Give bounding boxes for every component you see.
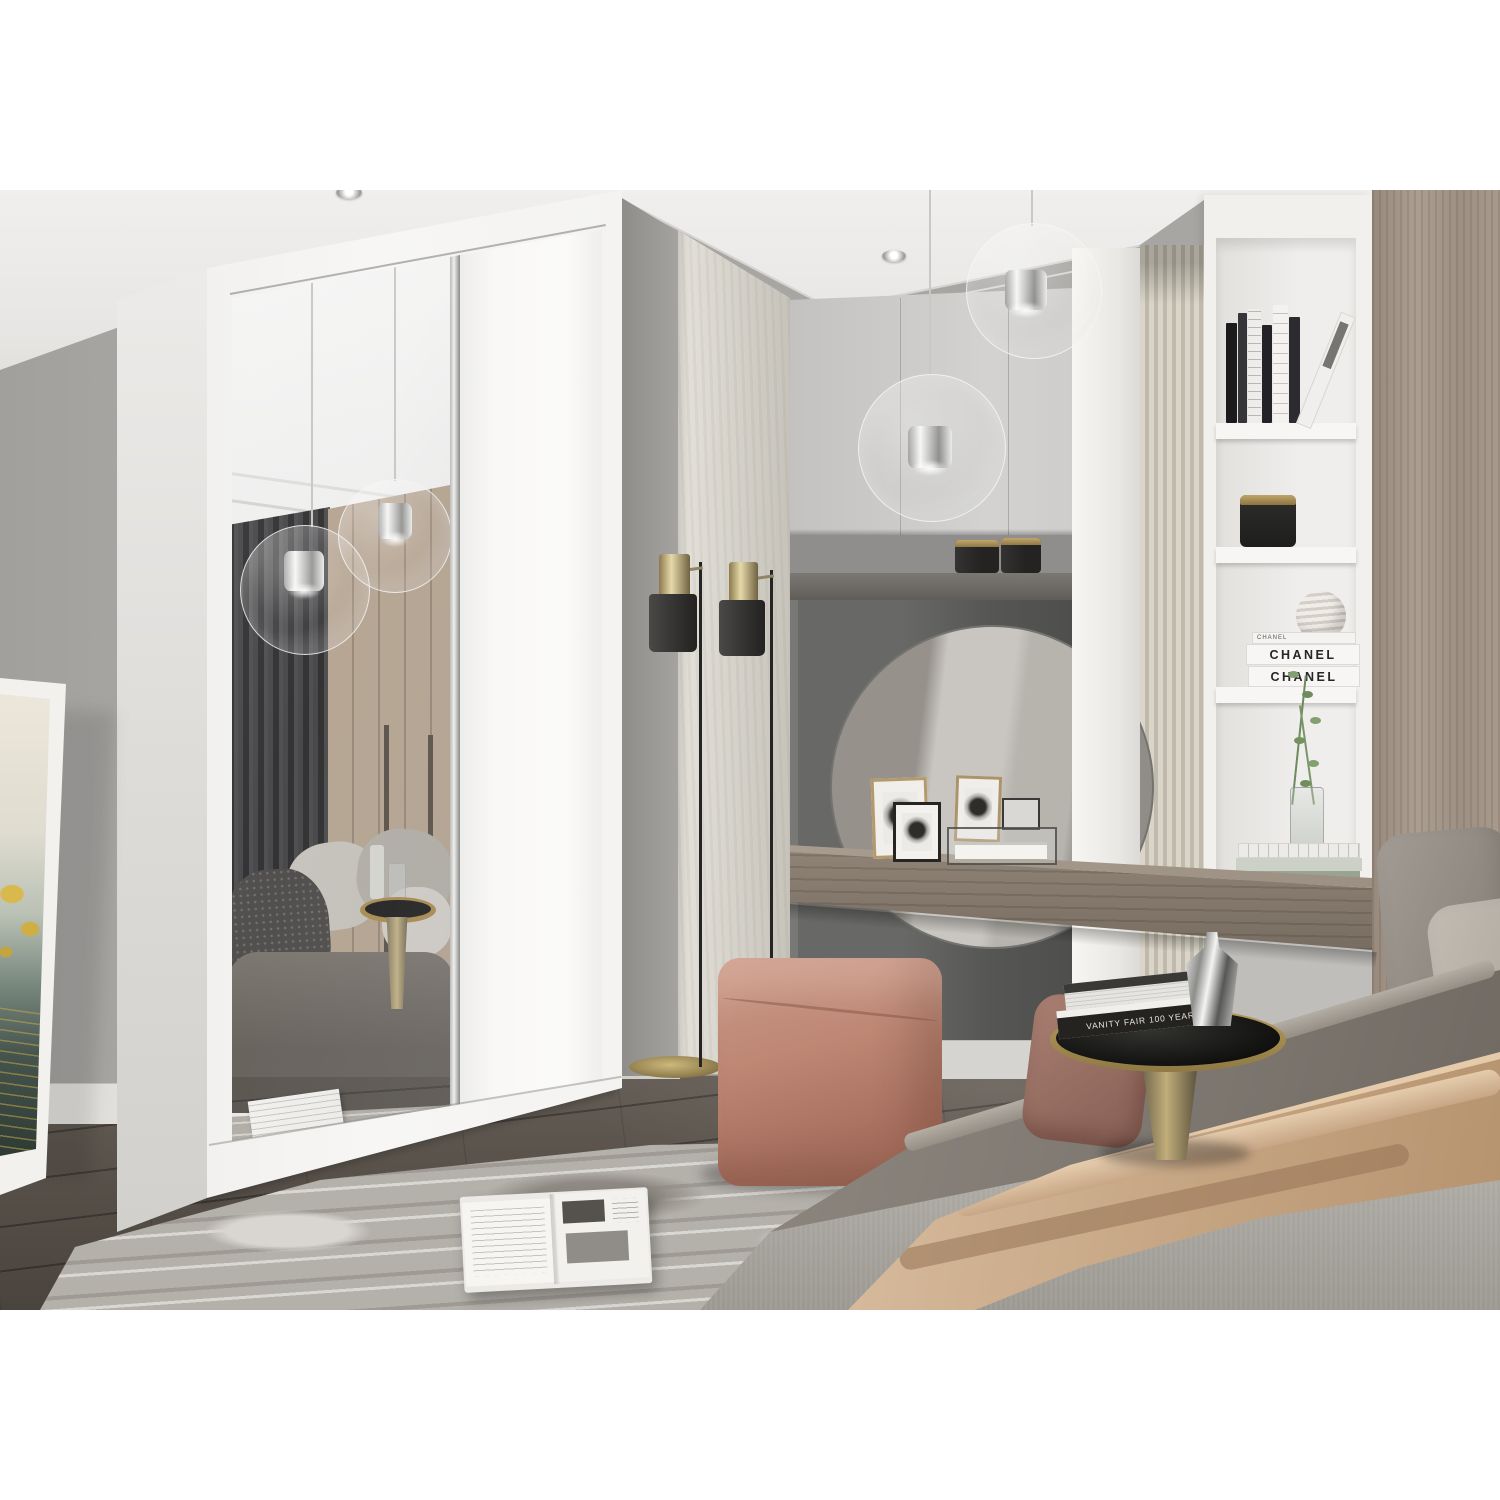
book-spine (1289, 317, 1300, 423)
book (1238, 843, 1360, 858)
shelf-board (1216, 547, 1356, 563)
magazine-photo (562, 1199, 605, 1223)
candle-jar (1240, 495, 1296, 547)
wardrobe-side-panel (117, 268, 207, 1235)
black-canister (955, 540, 999, 573)
leaf (1300, 780, 1311, 787)
black-canister (1001, 538, 1041, 573)
magazine-right-page (554, 1189, 650, 1282)
shelf-board (1216, 423, 1356, 439)
chanel-book: CHANEL (1246, 644, 1360, 665)
wardrobe-white-door (460, 229, 602, 1104)
artwork-grass-detail (0, 1004, 50, 1156)
book-row (1222, 285, 1356, 423)
niche-shelf (788, 573, 1075, 600)
chanel-book-thin: CHANEL (1252, 632, 1356, 644)
leaf (1294, 737, 1305, 744)
magazine-text-columns (470, 1207, 547, 1277)
floor-lamp-brass-cap (729, 562, 758, 603)
floor-lamp-pole (699, 562, 702, 1067)
leaning-book (1296, 312, 1356, 429)
shelving-column: CHANEL CHANEL CHANEL (1204, 195, 1372, 955)
book-spine (1226, 323, 1237, 423)
sliding-door-divider (450, 255, 460, 1106)
book (1236, 858, 1362, 871)
mirror-glass-tint (232, 257, 450, 1141)
letterbox-top (0, 0, 1500, 190)
bedroom-photo: CHANEL CHANEL CHANEL (0, 190, 1500, 1310)
floor-lamp-base (629, 1056, 721, 1078)
pendant-cord (929, 190, 931, 375)
leaf (1302, 691, 1313, 698)
open-magazine (460, 1187, 653, 1293)
canister-lid (955, 540, 999, 547)
glass-globe-pendant (858, 374, 1006, 522)
screenshot-root: CHANEL CHANEL CHANEL (0, 0, 1500, 1500)
floor-lamp-shade (719, 600, 765, 656)
book-spine (1238, 313, 1247, 423)
book-spine (1273, 305, 1288, 423)
glass-globe-pendant (966, 223, 1102, 359)
artwork-print (0, 694, 50, 1156)
frame-artwork (963, 788, 992, 831)
pendant-cord (1031, 190, 1033, 226)
leaf (1310, 717, 1321, 724)
glass-display-box (947, 827, 1057, 865)
leaf (1308, 760, 1319, 767)
canister-lid (1001, 538, 1041, 545)
frame-artwork (902, 813, 931, 851)
floor-lamp-brass-cap (659, 554, 690, 597)
magazine-photo (566, 1230, 629, 1263)
picture-frame-black (893, 802, 941, 862)
book-spine (1262, 325, 1272, 423)
floor-lamp-shade (649, 594, 697, 652)
candle-jar-lid (1240, 495, 1296, 505)
book-in-box (955, 842, 1047, 859)
book-spine (1248, 309, 1261, 423)
pouf-seam (722, 997, 937, 1023)
wardrobe-mirror-door (232, 257, 450, 1141)
letterbox-bottom (0, 1310, 1500, 1500)
picture-frame-small (1002, 798, 1040, 830)
magazine-text-columns (612, 1198, 639, 1223)
ceiling-spotlight (882, 250, 906, 262)
book-cover-photo (1322, 321, 1348, 369)
magazine-left-page (462, 1198, 556, 1287)
leaf (1288, 671, 1299, 678)
